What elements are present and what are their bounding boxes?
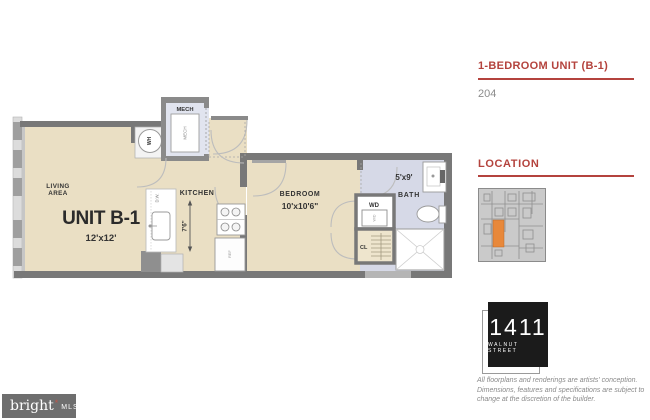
living-dimension-label: 12'x12' — [86, 233, 117, 244]
bedroom-floor — [247, 158, 362, 273]
mech-room: MECH MECH — [161, 97, 209, 161]
kitchen-label: KITCHEN — [180, 190, 215, 197]
cabinet-block — [161, 254, 183, 272]
disclaimer-line: change at the discretion of the builder. — [477, 395, 645, 405]
watermark-suffix: MLS — [61, 404, 78, 411]
unit-name-label: UNIT B-1 — [62, 208, 141, 229]
bath-dimension-label: 5'x9' — [395, 173, 412, 182]
washer-dryer-unit-label: W/D — [373, 214, 377, 221]
refrigerator-label: REF — [228, 250, 232, 258]
unit-title: 1-BEDROOM UNIT (B-1) — [478, 60, 634, 80]
toilet — [417, 206, 446, 223]
unit-number: 204 — [478, 88, 496, 100]
washer-dryer-closet: WD W/D — [356, 195, 394, 229]
mech-room-label: MECH — [176, 107, 193, 113]
closet: CL — [356, 229, 394, 263]
disclaimer-line: Dimensions, features and specifications … — [477, 386, 645, 396]
watermark-brand: bright — [10, 399, 54, 413]
closet-label: CL — [360, 245, 368, 251]
bedroom-dimension-label: 10'x10'6" — [282, 201, 318, 211]
highlighted-unit — [493, 220, 504, 247]
stove — [217, 204, 245, 235]
logo-number: 1411 — [489, 315, 546, 339]
brightmls-watermark: bright * MLS — [2, 394, 76, 418]
disclaimer-line: All floorplans and renderings are artist… — [477, 376, 645, 386]
floorplan-drawing: WH MECH MECH — [0, 0, 460, 420]
floorplan-sheet: WH MECH MECH — [0, 0, 650, 420]
washer-dryer-label: WD — [369, 203, 380, 209]
water-heater-label: WH — [147, 136, 153, 145]
location-map — [478, 188, 546, 262]
living-area-label-line1: LIVING — [46, 183, 69, 190]
living-area-label-line2: AREA — [48, 190, 67, 197]
water-heater-closet: WH — [135, 127, 165, 158]
location-heading: LOCATION — [478, 158, 634, 177]
mech-unit-label: MECH — [183, 126, 188, 139]
disclaimer: All floorplans and renderings are artist… — [477, 376, 645, 405]
watermark-star-icon: * — [55, 398, 59, 408]
logo-square: 1411 WALNUT STREET — [488, 302, 548, 367]
bedroom-label: BEDROOM — [280, 191, 321, 198]
refrigerator: REF — [215, 238, 245, 271]
window-wall — [13, 117, 25, 278]
shower — [396, 229, 444, 270]
building-logo: 1411 WALNUT STREET — [480, 302, 550, 376]
vanity-sink — [423, 162, 446, 192]
entry-door-leaf — [211, 116, 248, 120]
kitchen-dimension-label: 7'6" — [182, 220, 189, 231]
logo-street: WALNUT STREET — [488, 342, 548, 354]
dishwasher-label: D.W. — [155, 193, 160, 202]
bath-label: BATH — [398, 192, 420, 199]
